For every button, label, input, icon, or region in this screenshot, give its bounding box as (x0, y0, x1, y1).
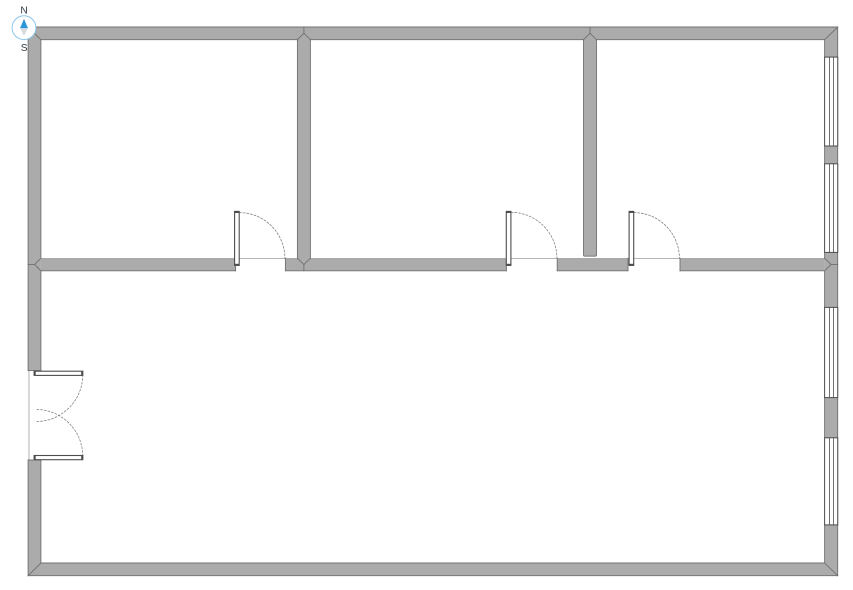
svg-text:S: S (21, 43, 28, 54)
svg-text:N: N (20, 6, 27, 17)
